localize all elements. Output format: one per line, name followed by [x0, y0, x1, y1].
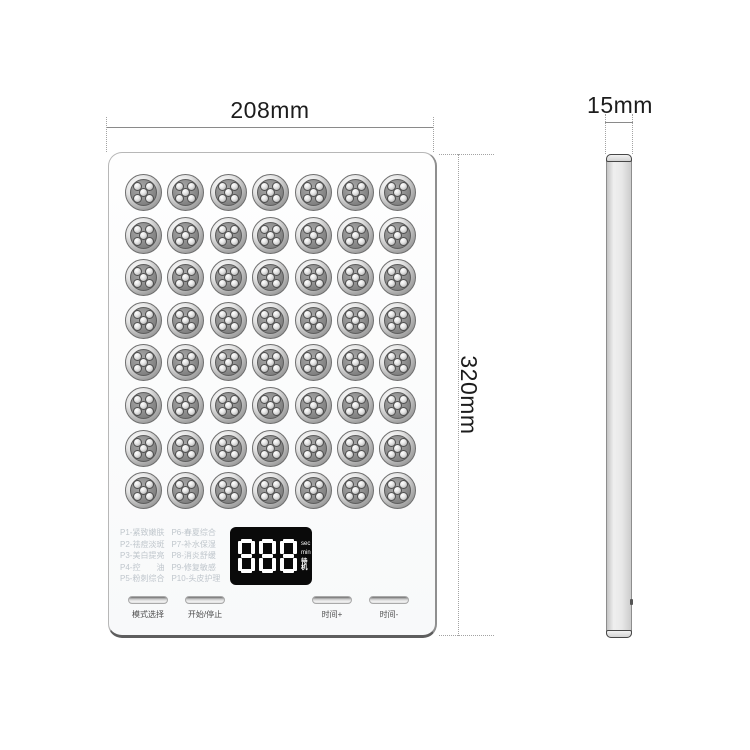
led-dot [399, 364, 408, 373]
led-disc [342, 264, 369, 291]
led-disc [257, 179, 284, 206]
led-disc [172, 264, 199, 291]
led-disc [384, 392, 411, 419]
button-time-minus-label: 时间- [357, 609, 421, 620]
led-cluster [337, 302, 374, 339]
led-dot [357, 492, 366, 501]
led-dot [218, 237, 227, 246]
led-cluster [295, 217, 332, 254]
led-cluster [125, 387, 162, 424]
led-cluster [379, 217, 416, 254]
led-dot [187, 237, 196, 246]
mode-item: P2-祛痘淡斑 [120, 539, 164, 551]
led-dot [303, 407, 312, 416]
display-unit-labels: sec min 待机 [301, 541, 311, 571]
led-disc [215, 477, 242, 504]
led-disc [130, 392, 157, 419]
led-dot [303, 194, 312, 203]
width-dimension-label: 208mm [170, 97, 370, 124]
led-cluster [295, 174, 332, 211]
led-dot [260, 237, 269, 246]
led-cluster [295, 430, 332, 467]
led-cluster [210, 430, 247, 467]
led-disc [384, 264, 411, 291]
width-dimension-extension-left [106, 117, 107, 152]
led-cluster [167, 472, 204, 509]
led-cluster [210, 472, 247, 509]
led-disc [130, 179, 157, 206]
mode-item: P6-春夏综合 [171, 527, 220, 539]
led-dot [345, 279, 354, 288]
led-disc [300, 222, 327, 249]
led-cluster [379, 430, 416, 467]
led-dot [272, 492, 281, 501]
led-cluster [337, 259, 374, 296]
led-dot [272, 322, 281, 331]
led-dot [399, 194, 408, 203]
led-disc [342, 222, 369, 249]
led-dot [145, 492, 154, 501]
led-cluster [167, 174, 204, 211]
led-dot [218, 364, 227, 373]
mode-item: P9-修复敏感 [171, 562, 220, 574]
led-dot [218, 322, 227, 331]
led-cluster [210, 344, 247, 381]
button-mode-select-label: 模式选择 [116, 609, 180, 620]
led-dot [133, 194, 142, 203]
led-dot [133, 492, 142, 501]
mode-column-1: P1-紧致嫩肤P2-祛痘淡斑P3-美白提亮P4-控 油P5-粉刺综合 [120, 527, 164, 585]
led-disc [300, 435, 327, 462]
led-dot [230, 194, 239, 203]
led-dot [399, 407, 408, 416]
led-cluster [379, 259, 416, 296]
led-disc [342, 349, 369, 376]
led-disc [342, 179, 369, 206]
led-disc [342, 477, 369, 504]
led-dot [303, 322, 312, 331]
led-disc [384, 477, 411, 504]
led-dot [315, 407, 324, 416]
led-dot [387, 450, 396, 459]
led-disc [300, 349, 327, 376]
led-dot [187, 492, 196, 501]
mode-item: P10-头皮护理 [171, 573, 220, 585]
led-dot [260, 364, 269, 373]
led-disc [342, 392, 369, 419]
led-dot [218, 450, 227, 459]
led-disc [300, 179, 327, 206]
led-dot [357, 279, 366, 288]
led-dot [133, 279, 142, 288]
led-disc [130, 307, 157, 334]
led-disc [172, 222, 199, 249]
led-dot [387, 237, 396, 246]
side-panel-top-cap [606, 154, 632, 162]
led-disc [257, 307, 284, 334]
led-display: sec min 待机 [230, 527, 312, 585]
led-dot [218, 407, 227, 416]
led-cluster [379, 387, 416, 424]
led-cluster [252, 387, 289, 424]
led-cluster [125, 302, 162, 339]
led-cluster [125, 430, 162, 467]
led-disc [384, 349, 411, 376]
led-dot [230, 364, 239, 373]
led-disc [215, 435, 242, 462]
led-dot [145, 364, 154, 373]
led-disc [172, 349, 199, 376]
led-cluster [167, 217, 204, 254]
display-unit-standby: 待机 [301, 559, 311, 571]
led-cluster [379, 472, 416, 509]
width-dimension-line [106, 127, 434, 128]
led-cluster [167, 344, 204, 381]
led-dot [260, 450, 269, 459]
depth-dimension-extension-right [632, 114, 633, 154]
led-cluster [167, 387, 204, 424]
depth-dimension-line [605, 122, 633, 123]
led-cluster [295, 387, 332, 424]
led-dot [218, 279, 227, 288]
led-disc [215, 264, 242, 291]
device-front-panel: P1-紧致嫩肤P2-祛痘淡斑P3-美白提亮P4-控 油P5-粉刺综合 P6-春夏… [108, 152, 437, 638]
led-dot [230, 407, 239, 416]
button-pill [185, 596, 225, 604]
led-disc [257, 349, 284, 376]
side-panel-port-notch [630, 599, 633, 605]
display-unit-min: min [301, 550, 311, 556]
led-cluster [337, 430, 374, 467]
mode-item: P7-补水保湿 [171, 539, 220, 551]
led-disc [215, 349, 242, 376]
led-dot [345, 450, 354, 459]
led-cluster [252, 174, 289, 211]
led-dot [357, 364, 366, 373]
led-cluster [379, 302, 416, 339]
mode-item: P1-紧致嫩肤 [120, 527, 164, 539]
side-panel-bottom-cap [606, 630, 632, 638]
led-dot [399, 322, 408, 331]
led-dot [145, 194, 154, 203]
led-dot [272, 279, 281, 288]
button-pill [312, 596, 352, 604]
led-cluster [125, 217, 162, 254]
led-dot [187, 194, 196, 203]
led-dot [272, 364, 281, 373]
led-dot [175, 407, 184, 416]
led-dot [303, 492, 312, 501]
led-dot [315, 279, 324, 288]
height-dimension-extension-top [439, 154, 494, 155]
led-dot [230, 492, 239, 501]
led-cluster [210, 174, 247, 211]
led-cluster [125, 259, 162, 296]
led-cluster [337, 217, 374, 254]
led-cluster [210, 259, 247, 296]
led-cluster [252, 344, 289, 381]
mode-item: P5-粉刺综合 [120, 573, 164, 585]
led-dot [387, 279, 396, 288]
led-disc [215, 222, 242, 249]
mode-item: P3-美白提亮 [120, 550, 164, 562]
led-dot [399, 237, 408, 246]
height-dimension-label: 320mm [454, 355, 482, 435]
led-dot [357, 322, 366, 331]
led-cluster [252, 302, 289, 339]
led-dot [218, 492, 227, 501]
led-dot [315, 364, 324, 373]
led-dot [303, 450, 312, 459]
led-cluster [337, 174, 374, 211]
led-dot [175, 194, 184, 203]
display-digit [280, 539, 297, 573]
led-dot [357, 237, 366, 246]
led-cluster [379, 344, 416, 381]
led-disc [130, 222, 157, 249]
led-dot [399, 450, 408, 459]
led-dot [303, 237, 312, 246]
mode-item: P8-消炎舒缓 [171, 550, 220, 562]
led-dot [387, 492, 396, 501]
led-disc [300, 392, 327, 419]
led-dot [260, 194, 269, 203]
led-dot [345, 364, 354, 373]
led-cluster [167, 302, 204, 339]
led-dot [230, 279, 239, 288]
led-cluster [210, 387, 247, 424]
led-disc [342, 307, 369, 334]
led-cluster [167, 430, 204, 467]
led-dot [175, 279, 184, 288]
led-cluster [295, 344, 332, 381]
led-dot [357, 407, 366, 416]
led-dot [272, 407, 281, 416]
led-cluster [337, 387, 374, 424]
led-dot [303, 364, 312, 373]
led-dot [187, 450, 196, 459]
led-dot [145, 450, 154, 459]
led-dot [315, 492, 324, 501]
led-disc [257, 264, 284, 291]
led-disc [172, 179, 199, 206]
led-disc [300, 307, 327, 334]
led-dot [230, 450, 239, 459]
led-dot [133, 450, 142, 459]
width-dimension-extension-right [433, 117, 434, 152]
led-cluster [252, 217, 289, 254]
led-cluster [125, 472, 162, 509]
led-cluster [252, 259, 289, 296]
button-pill [369, 596, 409, 604]
led-dot [399, 492, 408, 501]
led-disc [300, 477, 327, 504]
led-dot [187, 364, 196, 373]
led-dot [230, 237, 239, 246]
led-cluster [125, 344, 162, 381]
led-dot [399, 279, 408, 288]
led-disc [384, 222, 411, 249]
led-dot [303, 279, 312, 288]
depth-dimension-extension-left [605, 114, 606, 154]
button-time-plus-label: 时间+ [300, 609, 364, 620]
led-cluster [125, 174, 162, 211]
led-cluster [252, 472, 289, 509]
led-disc [384, 435, 411, 462]
led-disc [384, 179, 411, 206]
led-disc [130, 435, 157, 462]
led-dot [387, 322, 396, 331]
display-digit [238, 539, 255, 573]
device-side-panel [606, 154, 632, 638]
led-grid [125, 174, 416, 509]
led-disc [172, 477, 199, 504]
led-dot [260, 322, 269, 331]
led-dot [133, 322, 142, 331]
led-dot [357, 194, 366, 203]
led-dot [315, 322, 324, 331]
led-dot [345, 407, 354, 416]
led-cluster [295, 259, 332, 296]
led-dot [230, 322, 239, 331]
led-disc [257, 222, 284, 249]
led-dot [145, 279, 154, 288]
led-disc [215, 392, 242, 419]
led-disc [257, 392, 284, 419]
led-cluster [337, 344, 374, 381]
led-disc [172, 307, 199, 334]
led-dot [357, 450, 366, 459]
led-dot [387, 407, 396, 416]
led-dot [133, 407, 142, 416]
mode-item: P4-控 油 [120, 562, 164, 574]
led-cluster [337, 472, 374, 509]
led-disc [215, 307, 242, 334]
led-dot [145, 322, 154, 331]
led-dot [175, 237, 184, 246]
button-start-stop-label: 开始/停止 [173, 609, 237, 620]
led-dot [345, 237, 354, 246]
led-dot [315, 450, 324, 459]
led-dot [175, 450, 184, 459]
mode-list: P1-紧致嫩肤P2-祛痘淡斑P3-美白提亮P4-控 油P5-粉刺综合 P6-春夏… [120, 527, 220, 585]
led-dot [387, 364, 396, 373]
led-dot [187, 407, 196, 416]
led-disc [384, 307, 411, 334]
led-cluster [295, 472, 332, 509]
led-dot [345, 322, 354, 331]
led-cluster [210, 302, 247, 339]
display-digit [259, 539, 276, 573]
led-dot [175, 492, 184, 501]
led-dot [187, 322, 196, 331]
led-dot [145, 237, 154, 246]
led-cluster [295, 302, 332, 339]
led-dot [133, 237, 142, 246]
led-dot [218, 194, 227, 203]
led-cluster [252, 430, 289, 467]
button-pill [128, 596, 168, 604]
led-dot [175, 364, 184, 373]
led-dot [260, 407, 269, 416]
led-dot [387, 194, 396, 203]
led-cluster [210, 217, 247, 254]
led-dot [315, 237, 324, 246]
led-disc [257, 435, 284, 462]
led-cluster [379, 174, 416, 211]
led-disc [130, 477, 157, 504]
led-dot [345, 194, 354, 203]
led-dot [272, 237, 281, 246]
mode-column-2: P6-春夏综合P7-补水保湿P8-消炎舒缓P9-修复敏感P10-头皮护理 [171, 527, 220, 585]
led-dot [187, 279, 196, 288]
led-cluster [167, 259, 204, 296]
led-disc [130, 264, 157, 291]
product-diagram: 208mm 320mm 15mm P1-紧致嫩肤P2-祛痘淡斑P3-美白提亮P4… [0, 0, 750, 750]
display-digits [238, 539, 297, 573]
led-dot [145, 407, 154, 416]
led-dot [133, 364, 142, 373]
led-disc [215, 179, 242, 206]
led-dot [272, 194, 281, 203]
height-dimension-extension-bottom [439, 635, 494, 636]
led-dot [175, 322, 184, 331]
led-disc [342, 435, 369, 462]
display-unit-sec: sec [301, 541, 311, 547]
depth-dimension-label: 15mm [575, 92, 665, 119]
led-disc [172, 392, 199, 419]
led-dot [272, 450, 281, 459]
led-dot [260, 279, 269, 288]
led-disc [130, 349, 157, 376]
led-dot [345, 492, 354, 501]
led-dot [260, 492, 269, 501]
led-disc [172, 435, 199, 462]
led-disc [300, 264, 327, 291]
led-dot [315, 194, 324, 203]
led-disc [257, 477, 284, 504]
